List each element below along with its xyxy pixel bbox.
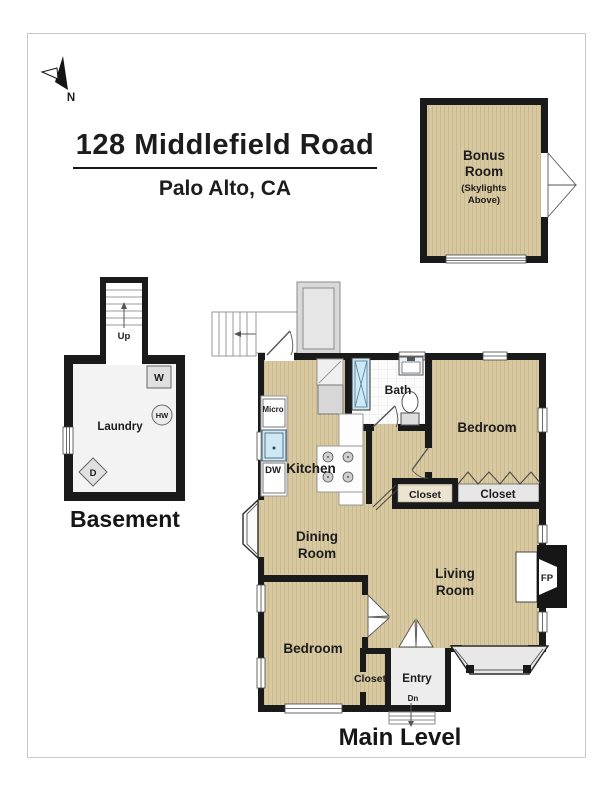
laundry-label: Laundry (97, 421, 143, 433)
dw-label: DW (265, 465, 281, 476)
bonus-room-note: (Skylights (461, 183, 506, 194)
closet-lower-label: Closet (354, 673, 387, 685)
bath-label: Bath (385, 383, 412, 397)
stairs-up-label: Up (118, 331, 131, 342)
fireplace-label: FP (541, 573, 554, 584)
north-arrow: N (38, 52, 90, 107)
bonus-room-label: Bonus (463, 148, 505, 163)
main-level-caption: Main Level (330, 724, 470, 752)
bonus-room-floor (427, 105, 541, 256)
living-room-label: Living (435, 566, 475, 581)
bonus-room-label: Room (465, 164, 503, 179)
bonus-window (446, 255, 526, 263)
kitchen-label: Kitchen (286, 461, 336, 476)
closet-hall-label: Closet (409, 489, 442, 501)
title-block: 128 Middlefield Road Palo Alto, CA (73, 129, 377, 201)
page-subtitle: Palo Alto, CA (73, 177, 377, 201)
shower (352, 358, 370, 410)
bedroom-lower-label: Bedroom (283, 641, 342, 656)
closet-bedroom-label: Closet (480, 489, 515, 501)
kitchen-sink (262, 430, 286, 461)
living-room-label: Room (436, 583, 474, 598)
basement-plan: Up W HW D Laundry (55, 268, 203, 513)
micro-label: Micro (262, 405, 283, 414)
north-label: N (67, 92, 75, 104)
entry-label: Entry (402, 673, 432, 685)
dining-bay-window (243, 500, 264, 558)
entry-dn-label: Dn (408, 694, 419, 703)
north-arrow-tail (42, 68, 58, 79)
stair-landing (256, 312, 298, 353)
dining-room-label: Room (298, 546, 336, 561)
bonus-room-plan: Bonus Room (Skylights Above) (415, 88, 585, 278)
main-level-plan: Dn (210, 268, 575, 733)
bath-sink (399, 357, 423, 375)
water-heater-label: HW (156, 411, 169, 420)
bonus-room-note: Above) (468, 195, 500, 206)
bonus-door-leaf (548, 185, 576, 217)
bedroom-upper-label: Bedroom (457, 420, 516, 435)
living-bay-window (451, 645, 548, 674)
page-title: 128 Middlefield Road (73, 129, 377, 169)
bonus-door-leaf (548, 153, 576, 185)
basement-caption: Basement (55, 506, 195, 533)
dining-room-label: Dining (296, 529, 338, 544)
washer-label: W (154, 372, 164, 384)
basement-window (63, 427, 73, 454)
refrigerator (318, 385, 343, 414)
dryer-label: D (90, 468, 97, 479)
